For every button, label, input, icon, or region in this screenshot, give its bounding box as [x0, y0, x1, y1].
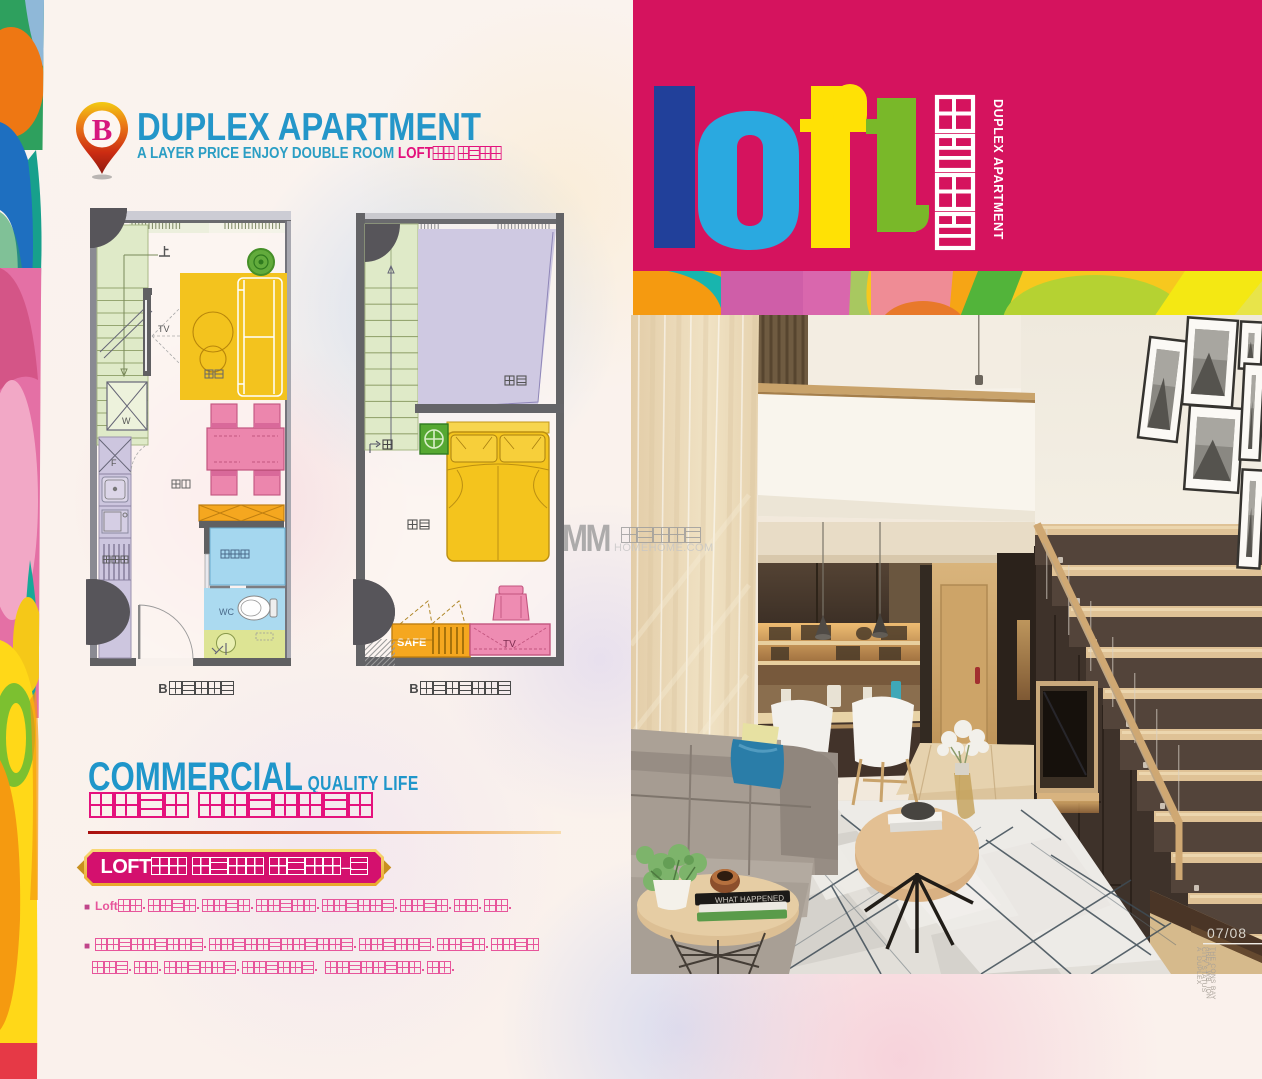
- svg-text:TV: TV: [503, 639, 516, 650]
- svg-text:WC: WC: [219, 607, 234, 617]
- svg-text:TV: TV: [158, 324, 170, 334]
- svg-text:DUPLEX APARTMENT: DUPLEX APARTMENT: [991, 99, 1005, 240]
- svg-text:F: F: [111, 458, 117, 468]
- svg-text:B: B: [92, 112, 113, 147]
- svg-text:SAFE: SAFE: [397, 637, 426, 649]
- svg-text:07/08: 07/08: [1207, 925, 1247, 941]
- svg-text:W: W: [122, 416, 131, 426]
